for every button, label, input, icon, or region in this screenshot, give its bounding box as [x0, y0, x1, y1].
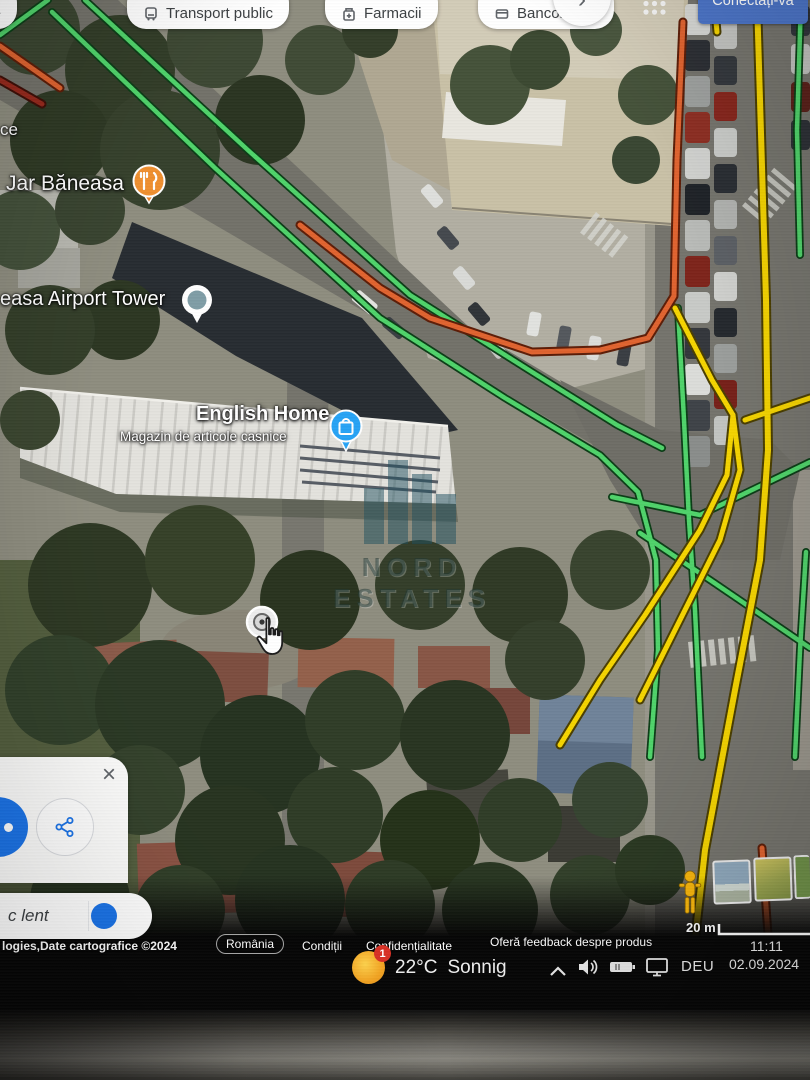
layer-tile-satellite[interactable]: [793, 855, 810, 900]
sun-icon: 1: [352, 951, 385, 984]
map-label-airport-tower[interactable]: easa Airport Tower: [0, 288, 165, 311]
place-card: ×: [0, 757, 128, 883]
tray-chevron-up-icon[interactable]: [549, 964, 567, 982]
layer-tile-terrain[interactable]: [753, 856, 793, 901]
chip-transit[interactable]: Transport public: [127, 0, 289, 29]
traffic-legend-pill[interactable]: c lent: [0, 893, 152, 939]
chip-museums-label: Muzee: [0, 5, 1, 22]
attribution-link-feedback[interactable]: Oferă feedback despre produs: [490, 935, 652, 949]
share-icon: [53, 815, 77, 839]
layer-tile-map[interactable]: [712, 859, 752, 904]
atm-icon: [494, 6, 510, 22]
traffic-toggle-dot[interactable]: [91, 903, 117, 929]
map-label-fragment: ce: [0, 120, 18, 140]
pegman-icon[interactable]: [676, 870, 704, 921]
scale-label: 20 m: [686, 920, 716, 935]
tray-speaker-icon[interactable]: [577, 957, 599, 982]
hand-cursor-icon: [254, 616, 290, 663]
map-label-store-title[interactable]: English Home: [196, 403, 329, 426]
map-label-store-subtitle: Magazin de articole casnice: [120, 429, 287, 444]
chip-pharmacies[interactable]: Farmacii: [325, 0, 438, 29]
map-canvas[interactable]: NORD ESTATES ce Jar Băneasa easa Airport…: [0, 0, 810, 947]
tray-battery-icon[interactable]: [609, 959, 637, 980]
notification-badge: 1: [374, 945, 391, 962]
directions-button[interactable]: [0, 797, 28, 857]
weather-temperature: 22°C: [395, 957, 437, 979]
laptop-bezel: [0, 1010, 810, 1080]
tray-monitor-icon[interactable]: [645, 957, 669, 982]
chip-transit-label: Transport public: [166, 5, 273, 22]
attribution-link-terms[interactable]: Condiții: [302, 939, 342, 953]
attribution-link-country[interactable]: România: [216, 934, 284, 954]
shopping-pin-icon[interactable]: [328, 409, 364, 460]
clock-time[interactable]: 11:11: [750, 938, 783, 954]
chip-pharmacies-label: Farmacii: [364, 5, 422, 22]
share-button[interactable]: [36, 798, 94, 856]
scale-bar: [716, 922, 810, 938]
map-label-restaurant[interactable]: Jar Băneasa: [6, 172, 124, 196]
signin-button[interactable]: Conectați-vă: [698, 0, 808, 24]
divider: [88, 901, 89, 931]
map-copyright: logies,Date cartografice ©2024: [2, 939, 177, 953]
directions-icon: [4, 823, 13, 832]
weather-condition: Sonnig: [447, 957, 506, 979]
restaurant-pin-icon[interactable]: [130, 163, 168, 214]
clock-date[interactable]: 02.09.2024: [729, 956, 799, 972]
apps-grid-icon[interactable]: [641, 0, 668, 22]
close-icon[interactable]: ×: [102, 763, 116, 787]
tray-language[interactable]: DEU: [681, 958, 714, 975]
laptop-screen-photo: NORD ESTATES ce Jar Băneasa easa Airport…: [0, 0, 810, 1080]
chevron-right-icon: ›: [578, 0, 586, 14]
signin-label: Conectați-vă: [712, 0, 793, 24]
tower-pin-icon[interactable]: [179, 283, 215, 332]
pharmacy-icon: [341, 6, 357, 22]
traffic-legend-label: c lent: [8, 906, 49, 926]
transit-icon: [143, 6, 159, 22]
weather-widget[interactable]: 1 22°C Sonnig: [352, 951, 507, 984]
